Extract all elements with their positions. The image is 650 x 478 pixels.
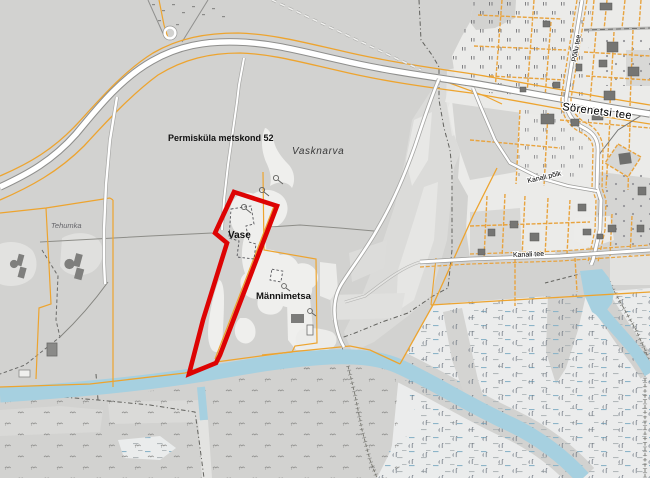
svg-text:Vasknarva: Vasknarva [292,146,344,157]
svg-text:Kanali tee: Kanali tee [513,251,544,259]
svg-text:Permisküla metskond 52: Permisküla metskond 52 [168,133,274,143]
svg-text:Männimetsa: Männimetsa [256,291,312,302]
svg-text:Vase: Vase [228,230,251,241]
svg-text:Tehumka: Tehumka [51,221,82,230]
